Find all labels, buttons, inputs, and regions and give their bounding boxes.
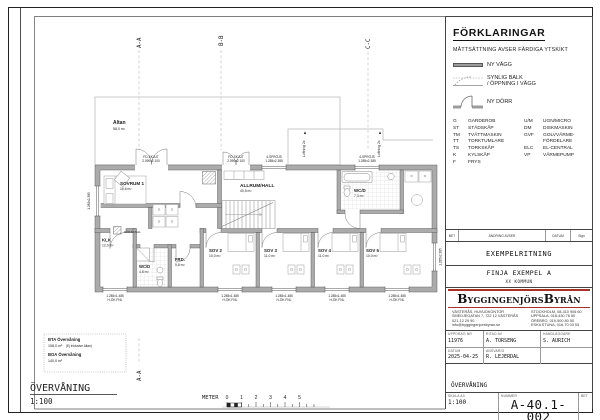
field-ritad: RITAD AVA. TORSENG (484, 331, 541, 348)
legend-heading: FÖRKLARINGAR (453, 27, 545, 41)
svg-text:5,8 m²: 5,8 m² (175, 263, 185, 267)
svg-text:1.285x2.385: 1.285x2.385 (439, 248, 443, 266)
svg-text:10,0 m²: 10,0 m² (366, 254, 378, 258)
svg-text:1: 1 (240, 395, 243, 401)
legend-item-new-door: NY DÖRR (453, 94, 585, 109)
number-row: SKALA A3 1:100 NUMMER A-40.1-002 BET (446, 393, 592, 409)
field-uppdrag: UPPDRAG NR11976 (446, 331, 484, 348)
svg-text:H-ÖK FNL: H-ÖK FNL (277, 298, 292, 302)
svg-text:H-ÖK FNL: H-ÖK FNL (108, 298, 123, 302)
revision-col-andring: ÄNDRING AVSER (459, 230, 546, 241)
svg-text:1.285x2.385: 1.285x2.385 (265, 159, 283, 163)
svg-text:WC/D: WC/D (139, 264, 150, 269)
bet-cell: BET (579, 393, 592, 420)
drawing-number: A-40.1-002 (501, 399, 576, 420)
svg-text:1.285x2.385: 1.285x2.385 (87, 192, 91, 210)
plan-scale-text: 1:100 (30, 397, 53, 406)
legend-item-new-wall: NY VÄGG (453, 62, 585, 68)
field-datum: DATUM2025-04-25 (446, 348, 484, 365)
legend-item-beam: SYNLIG BALK / ÖPPNING I VÄGG (453, 75, 585, 87)
new-door-symbol (453, 94, 483, 109)
new-wall-symbol (453, 63, 483, 67)
svg-text:H-ÖK FNL: H-ÖK FNL (223, 298, 238, 302)
svg-text:WC/D: WC/D (354, 188, 366, 193)
scale-bar-unit: METER (202, 395, 219, 401)
svg-text:0: 0 (226, 395, 229, 401)
company-block: ByggingenjörsByrån VÄSTERÅS, HUVUDKONTOR… (446, 288, 592, 331)
svg-text:Luftning 2x: Luftning 2x (302, 140, 306, 157)
plan-title-text: ÖVERVÅNING (30, 381, 90, 394)
svg-text:140,0 m²: 140,0 m² (48, 359, 63, 363)
project-name: FINJA EXEMPEL A (446, 269, 592, 277)
area-summary-box: BTA Övervåning 158,0 m² (Ej inklusive Al… (44, 334, 126, 372)
section-cc-top: C-C (366, 38, 372, 49)
svg-text:11,0 m²: 11,0 m² (264, 254, 276, 258)
svg-text:5: 5 (298, 395, 301, 401)
rokkanal-label: RÖKKANAL (124, 230, 141, 234)
section-bb-top: B-B (219, 35, 225, 46)
svg-text:SOV 2: SOV 2 (209, 248, 222, 253)
staircase (222, 201, 275, 229)
svg-text:H-ÖK FNL: H-ÖK FNL (330, 298, 345, 302)
section-aa-top: A-A (137, 37, 143, 48)
svg-text:3: 3 (269, 395, 272, 401)
drawing-type: EXEMPELRITNING (446, 242, 592, 266)
svg-text:2.090x2.100: 2.090x2.100 (227, 159, 245, 163)
svg-text:16,6 m²: 16,6 m² (120, 187, 132, 191)
svg-text:KLK: KLK (102, 238, 112, 243)
svg-text:BOA Övervåning: BOA Övervåning (48, 352, 82, 357)
svg-text:4: 4 (284, 395, 287, 401)
field-ansvarig: ANSVARIGR. LEJERDAL (484, 348, 541, 365)
meta-fields: UPPDRAG NR11976 RITAD AVA. TORSENG HANDL… (446, 331, 592, 364)
drawing-sheet: A-A B-B C-C A-A Altan 58,0 m² Luftning 2… (0, 0, 600, 420)
project-block: FINJA EXEMPEL A XX KOMMUN (446, 266, 592, 288)
svg-text:SOVRUM 1: SOVRUM 1 (120, 181, 144, 186)
svg-text:4,8 m²: 4,8 m² (139, 270, 149, 274)
title-block: FÖRKLARINGAR MÅTTSÄTTNING AVSER FÄRDIGA … (445, 16, 593, 409)
revision-col-datum: DATUM (546, 230, 571, 241)
legend-note: MÅTTSÄTTNING AVSER FÄRDIGA YTSKIKT (453, 47, 585, 53)
svg-text:FRD.: FRD. (175, 257, 185, 262)
legend-panel: FÖRKLARINGAR MÅTTSÄTTNING AVSER FÄRDIGA … (446, 17, 592, 230)
company-logo: ByggingenjörsByrån (446, 292, 592, 306)
municipality: XX KOMMUN (446, 279, 592, 284)
section-aa-bottom: A-A (137, 370, 143, 381)
logo-rule-bottom (448, 307, 590, 308)
plan-title: ÖVERVÅNING 1:100 (30, 381, 117, 406)
desks (233, 265, 420, 274)
field-handlaggare: HANDLÄGGARES. AURICH (541, 331, 592, 348)
svg-text:SOV 4: SOV 4 (318, 248, 331, 253)
scale-cell: SKALA A3 1:100 (446, 393, 499, 420)
svg-text:40,5 m²: 40,5 m² (240, 189, 252, 193)
rokkanal-flue (114, 227, 122, 235)
svg-text:1.285x2.385: 1.285x2.385 (358, 159, 376, 163)
murstock-chimney (203, 172, 216, 185)
field-empty (541, 348, 592, 365)
svg-text:(Ej inklusive Altan): (Ej inklusive Altan) (66, 344, 92, 348)
room-area: 58,0 m² (113, 127, 126, 131)
revision-col-bet: BET (446, 230, 459, 241)
beds (228, 234, 406, 252)
svg-text:7,3 m²: 7,3 m² (354, 194, 364, 198)
svg-text:11,0 m²: 11,0 m² (318, 254, 330, 258)
svg-text:H-ÖK FNL: H-ÖK FNL (390, 298, 405, 302)
svg-text:SOV 5: SOV 5 (366, 248, 379, 253)
visible-beam-symbol (453, 75, 483, 87)
svg-text:BTA Övervåning: BTA Övervåning (48, 337, 81, 342)
svg-text:Luftning 2x: Luftning 2x (377, 140, 381, 157)
abbreviation-table: GGARDEROBU/MUGN/MICRO STSTÄDSKÅPDMDISKMA… (453, 119, 585, 165)
room-label: Altan (113, 120, 126, 126)
number-cell: NUMMER A-40.1-002 (499, 393, 579, 420)
revision-header: BET ÄNDRING AVSER DATUM Sign (446, 230, 592, 242)
revision-col-sign: Sign (571, 230, 592, 241)
svg-text:12,0 m²: 12,0 m² (102, 244, 114, 248)
scale-bar: METER 0 1 2 3 4 5 (202, 395, 330, 407)
svg-text:158,0 m²: 158,0 m² (48, 344, 63, 348)
svg-text:SOV 3: SOV 3 (264, 248, 277, 253)
company-addresses: VÄSTERÅS, HUVUDKONTOR SMEDJEGATAN 7, 722… (446, 310, 592, 328)
luftning-vents: Luftning 2x Luftning 2x (302, 131, 381, 157)
svg-text:2.090x2.100: 2.090x2.100 (142, 159, 160, 163)
svg-text:2: 2 (255, 395, 258, 401)
drawing-content-label: ÖVERVÅNING (446, 364, 592, 393)
svg-text:10,0 m²: 10,0 m² (209, 254, 221, 258)
